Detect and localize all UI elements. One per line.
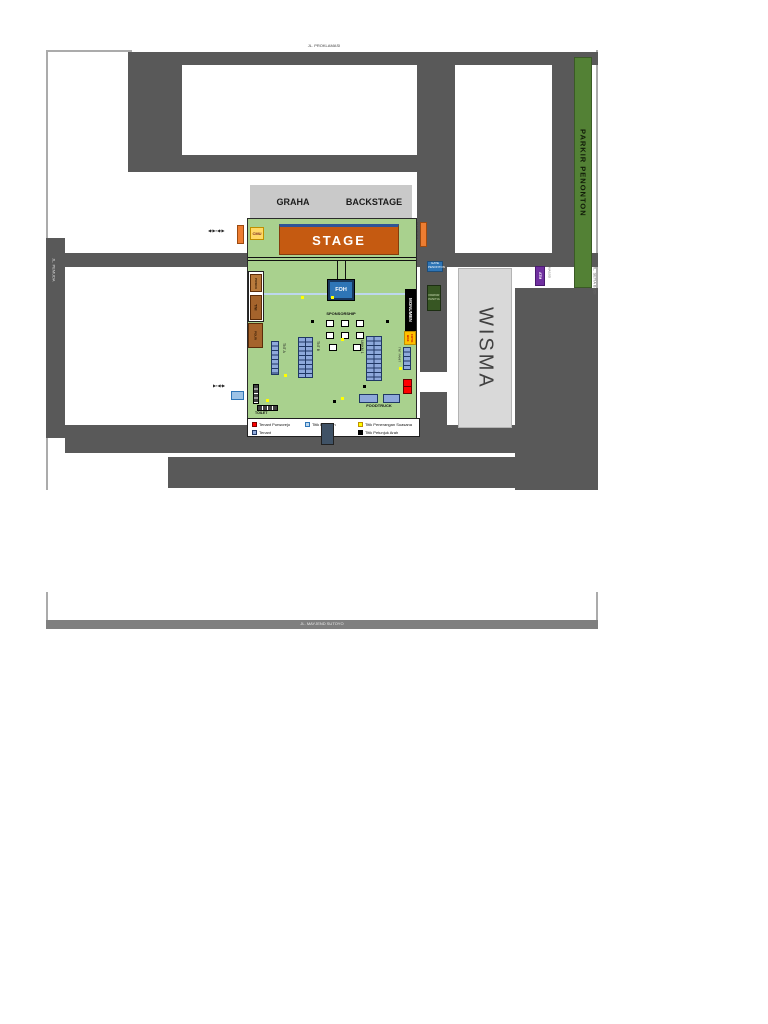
toilet-label: TOILET — [255, 412, 267, 416]
monumen-label: MONUMEN — [408, 298, 413, 322]
border-left-lower — [46, 592, 48, 622]
sign-dot — [333, 400, 336, 403]
tenant-special-red — [403, 379, 412, 394]
lighting-dot — [399, 367, 402, 370]
road-bottom-2 — [168, 457, 525, 488]
road-vertical-e — [552, 65, 574, 255]
road-top — [128, 52, 598, 65]
lighting-dot — [341, 338, 344, 341]
stage-label: STAGE — [312, 233, 366, 248]
legend-swatch-petunjuk — [358, 430, 363, 435]
graha-label: GRAHA — [264, 198, 322, 208]
gate-low-arrows: ▶▪◀▪▶ — [213, 384, 225, 388]
gate-left-arrows: ◀▪▶▪◀▪▶ — [208, 229, 225, 233]
barrier-line-1 — [248, 257, 416, 258]
border-top-left — [46, 50, 132, 52]
road-label-bottom: JL. MAYJEND SUTOYO — [272, 622, 372, 626]
masjid-label: MASJID — [547, 267, 550, 278]
barrier-line-2 — [248, 260, 416, 261]
parking-strip: PARKIR PENONTON — [574, 57, 592, 288]
cmu-badge: CMU — [250, 227, 264, 240]
legend-label-tenant-purworejo: Tenant Purworejo — [259, 422, 290, 427]
legend-swatch-tenant-purworejo — [252, 422, 257, 427]
gate-penonton-box: GATE PENONTON — [427, 261, 443, 272]
road-label-left: JL. PEMUDA — [51, 258, 55, 282]
gate-penonton-line2: PENONTON — [428, 266, 442, 270]
wisma-building: WISMA — [458, 268, 512, 428]
foto-box-label: FOTO BOX — [406, 332, 414, 344]
road-h2-left — [48, 253, 247, 267]
site-plan-page: JL. PROKLAMASI JL. PEMUDA JL. SETIA BUDI… — [0, 0, 768, 1024]
sponsor-booth — [326, 332, 334, 339]
toilet-stack — [253, 384, 259, 404]
road-label-top: JL. PROKLAMASI — [298, 44, 350, 48]
lighting-dot — [301, 296, 304, 299]
gate-orange-stage-left — [237, 225, 244, 244]
event-field: STAGE CMU FOH SPONSORSHIP — [247, 218, 417, 420]
tenant-row-umkm-label: UMKM 1 — [359, 340, 363, 354]
wisma-label: WISMA — [474, 307, 497, 390]
sign-dot — [386, 320, 389, 323]
cmu-label: CMU — [252, 231, 261, 236]
foodtruck-label: FOODTRUCK — [356, 404, 402, 408]
lighting-dot — [341, 397, 344, 400]
parkir-panitia-line2: PANITIA — [428, 297, 440, 301]
post-polri: POLRI — [248, 323, 263, 348]
foodtruck-stand — [359, 394, 378, 403]
road-label-right: JL. SETIA BUDI — [592, 266, 596, 294]
legend-swatch-lampion — [305, 422, 310, 427]
stage: STAGE — [279, 224, 399, 255]
tenant-row-a-label: TNT A — [281, 343, 285, 353]
legend-label-penerangan: Titik Penerangan Suasana — [365, 422, 412, 427]
tenant-row-b-label: TNT B — [315, 341, 319, 351]
foto-box: FOTO BOX — [404, 331, 416, 345]
sponsor-booth — [341, 320, 349, 327]
tenant-row-b — [298, 337, 313, 378]
lighting-dot — [266, 399, 269, 402]
sponsor-booth — [356, 332, 364, 339]
foh-label: FOH — [335, 287, 347, 293]
tenant-row-panitia-label: TNT PANIT — [397, 347, 400, 362]
foodtruck-stand — [383, 394, 400, 403]
pos-info-box — [321, 423, 334, 445]
parkir-panitia-box: PARKIR PANITIA — [427, 285, 441, 311]
legend-label-petunjuk: Titik Petunjuk Arah — [365, 430, 398, 435]
legend-swatch-tenant — [252, 430, 257, 435]
post-polri-label: POLRI — [254, 331, 258, 340]
road-block-right — [515, 288, 598, 490]
gate-blue-low — [231, 391, 244, 400]
backstage-label: BACKSTAGE — [338, 198, 410, 208]
atm-box: ATM — [535, 266, 545, 286]
monumen-box: MONUMEN — [405, 289, 416, 331]
lighting-dot — [331, 296, 334, 299]
road-d-upper — [420, 267, 447, 372]
sponsor-booth — [326, 320, 334, 327]
post-tni: TNI — [250, 295, 262, 320]
foh-stem-1 — [337, 261, 338, 282]
sign-dot — [363, 385, 366, 388]
atm-label: ATM — [538, 272, 542, 279]
tenant-row-panitia — [403, 347, 411, 370]
legend-label-tenant: Tenant — [259, 430, 271, 435]
post-tni-label: TNI — [254, 304, 259, 310]
legend-swatch-penerangan — [358, 422, 363, 427]
lighting-dot — [284, 374, 287, 377]
sponsorship-label: SPONSORSHIP — [318, 312, 364, 316]
parking-strip-label: PARKIR PENONTON — [579, 129, 588, 217]
gate-orange-stage-right — [420, 222, 427, 247]
tenant-row-a — [271, 341, 279, 375]
post-posko-label: POSKO — [254, 278, 258, 289]
sponsor-booth — [356, 320, 364, 327]
sign-dot — [311, 320, 314, 323]
sponsor-booth — [329, 344, 337, 351]
tenant-row-umkm — [366, 336, 382, 381]
road-stub-topleft — [128, 52, 182, 172]
post-posko: POSKO — [250, 274, 262, 292]
foh-stem-2 — [345, 261, 346, 282]
road-horizontal-mid — [180, 155, 420, 172]
border-right-lower — [596, 592, 598, 622]
